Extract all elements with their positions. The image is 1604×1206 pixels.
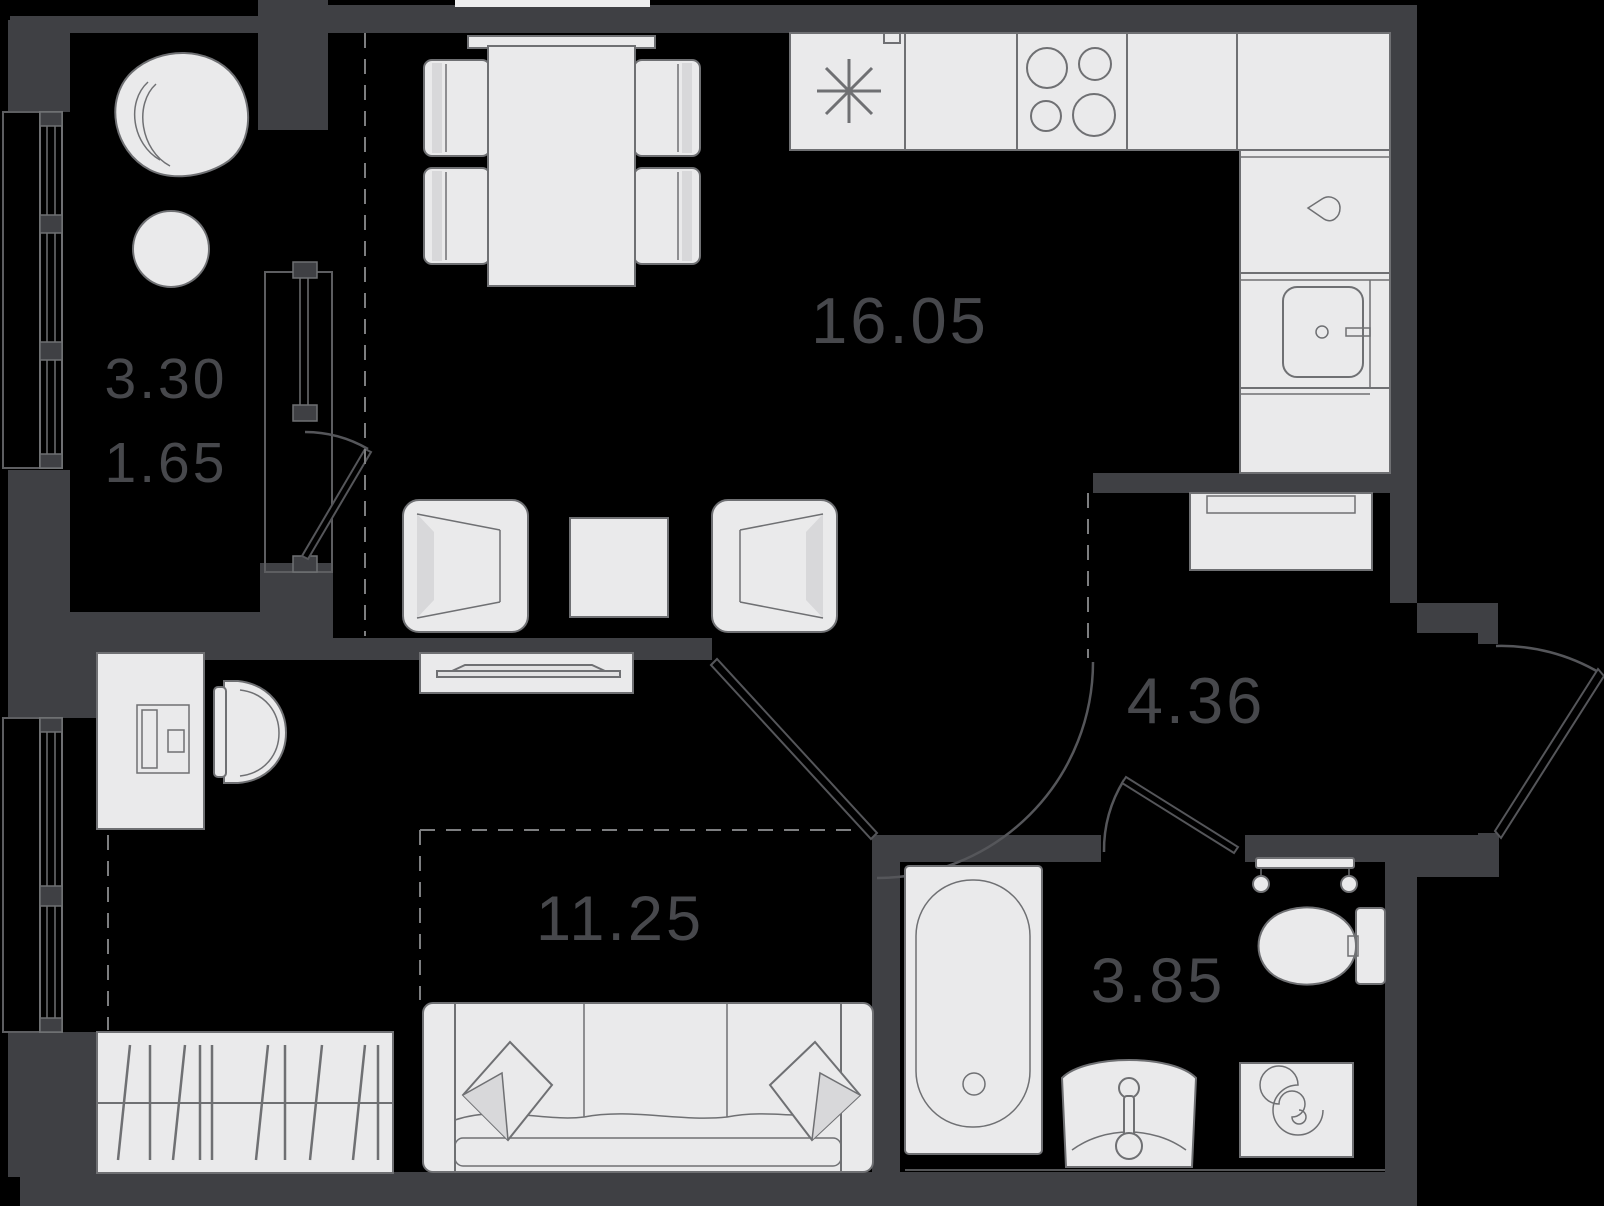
balcony-door-leaf [302, 449, 371, 559]
dining-table [488, 46, 635, 286]
hallway-closet [1190, 493, 1372, 570]
bathroom-door-leaf [1122, 777, 1238, 853]
entrance-door [1495, 646, 1604, 838]
kitchen-counter-side [1240, 150, 1390, 473]
balcony-reduced-area-label: 1.65 [105, 431, 228, 495]
fridge-icon [817, 59, 881, 123]
top-wall-gap [455, 0, 650, 7]
washing-machine [1240, 1063, 1353, 1157]
armchair [712, 500, 837, 632]
toilet [1259, 907, 1386, 984]
coffee-table [570, 518, 668, 617]
hallway-area-label: 4.36 [1127, 664, 1266, 737]
armchair [403, 500, 528, 632]
dining-chair [634, 168, 700, 264]
round-table [133, 211, 209, 287]
balcony-door-swing-arc [305, 432, 368, 449]
balcony-area-label: 3.30 [105, 347, 228, 411]
bathtub [905, 866, 1042, 1154]
bedroom-area-label: 11.25 [536, 884, 704, 954]
bathroom-door [1104, 777, 1238, 853]
kitchen [790, 33, 1390, 473]
washbasin [1062, 1060, 1196, 1167]
dining-chair [634, 60, 700, 156]
sofa [423, 1003, 873, 1172]
dining-chair [424, 60, 490, 156]
balcony-window [3, 112, 62, 468]
towel-rail [1253, 858, 1357, 892]
entrance-door-leaf [1495, 669, 1604, 838]
wardrobe [97, 1032, 393, 1173]
living-area [403, 500, 837, 693]
floor-plan: 3.30 1.65 16.05 4.36 11.25 3.85 [0, 0, 1604, 1206]
floor-plan-drawing: 3.30 1.65 16.05 4.36 11.25 3.85 [0, 0, 1604, 1206]
balcony-door-unit [265, 262, 371, 572]
bathroom-area-label: 3.85 [1091, 946, 1226, 1016]
bedroom-window [3, 718, 62, 1032]
bedroom-door-leaf [711, 659, 877, 839]
dining-set [424, 36, 700, 286]
bedroom-furniture [97, 653, 873, 1173]
desk-chair [214, 681, 286, 783]
balcony-furniture [115, 53, 248, 287]
bathroom-door-swing-arc [1104, 780, 1124, 852]
dining-chair [424, 168, 490, 264]
entrance-door-swing-arc [1496, 646, 1600, 673]
living-kitchen-area-label: 16.05 [811, 284, 989, 357]
tv-stand [420, 653, 633, 693]
desk [97, 653, 204, 829]
